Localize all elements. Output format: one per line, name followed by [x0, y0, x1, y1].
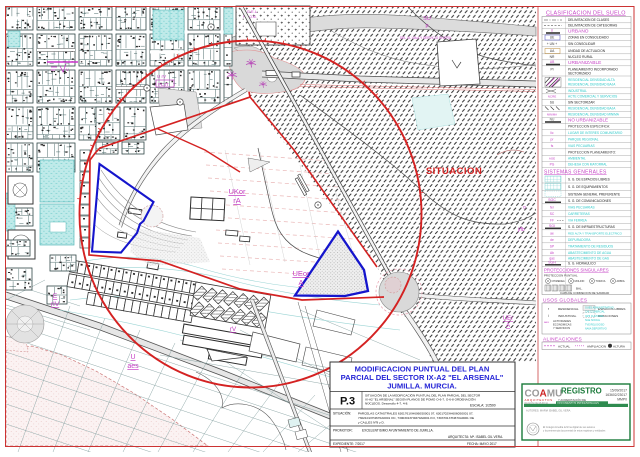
svg-text:INDUSTRIAL: INDUSTRIAL — [568, 89, 587, 93]
svg-text:EXPEDIENTE: 7/2017: EXPEDIENTE: 7/2017 — [333, 442, 365, 446]
svg-text:BAL.: BAL. — [576, 287, 583, 291]
svg-text:j/fb: j/fb — [517, 227, 525, 233]
svg-text:SU: SU — [550, 101, 555, 105]
svg-text:ZONAS EN CONSOLIDADO: ZONAS EN CONSOLIDADO — [568, 36, 609, 40]
svg-text:UKor: UKor — [228, 187, 246, 196]
svg-text:¤: ¤ — [523, 205, 526, 211]
svg-text:CAPA DE CORRECION DE SANIDAD: CAPA DE CORRECION DE SANIDAD — [560, 291, 609, 295]
svg-text:CARRETERAS: CARRETERAS — [568, 212, 590, 216]
svg-text:TVE RELIGIOSO: TVE RELIGIOSO — [585, 323, 604, 326]
svg-text:AMPLIACION: AMPLIACION — [587, 344, 606, 348]
svg-text:U: U — [130, 354, 135, 361]
svg-text:NÚCLEOS. Desarrollo 4-7, 4-8.: NÚCLEOS. Desarrollo 4-7, 4-8. — [365, 402, 408, 406]
svg-text:SISTEMAS GENERALES: SISTEMAS GENERALES — [544, 170, 607, 176]
svg-text:TORAYA: TORAYA — [596, 280, 606, 283]
svg-text:rIV: rIV — [51, 301, 60, 308]
svg-text:FF: FF — [550, 219, 554, 223]
svg-text:RED ALTA Y TRANSPORTE ELECTRIC: RED ALTA Y TRANSPORTE ELECTRICO — [568, 232, 623, 236]
svg-text:SECTORIZADO: SECTORIZADO — [568, 71, 591, 75]
svg-text:IGHI CULTURAL: IGHI CULTURAL — [585, 315, 604, 318]
svg-text:NO URBANIZABLE: NO URBANIZABLE — [568, 118, 608, 123]
svg-text:SIN CONSOLIDAR: SIN CONSOLIDAR — [568, 42, 596, 46]
svg-text:ARBOL: ARBOL — [617, 280, 626, 283]
svg-text:ARQUITECTA: Mª. ISABEL GIL: ARQUITECTA: Mª. ISABEL GIL VERA. — [448, 435, 503, 439]
svg-text:DEHESA CON MATORRAL: DEHESA CON MATORRAL — [568, 163, 607, 167]
svg-text:URBANO: URBANO — [568, 29, 589, 35]
svg-text:SIN SECTORIZAR: SIN SECTORIZAR — [568, 101, 595, 105]
svg-text:UEr: UEr — [503, 316, 513, 322]
svg-text:S. G. HIDRAULICO: S. G. HIDRAULICO — [568, 262, 596, 266]
svg-text:fs: fs — [551, 144, 554, 148]
svg-text:SITUACION: SITUACION — [426, 166, 482, 177]
svg-text:VIAS PECUARIAS: VIAS PECUARIAS — [568, 206, 595, 210]
svg-text:URBANIZABLE: URBANIZABLE — [568, 60, 601, 66]
svg-text:A: A — [298, 278, 303, 287]
svg-text:RESIDENCIAL DENSIDAD MINIMA: RESIDENCIAL DENSIDAD MINIMA — [568, 113, 620, 117]
svg-text:PROMOTOR:: PROMOTOR: — [333, 429, 353, 433]
svg-text:E: E — [53, 293, 58, 300]
svg-text:lic: lic — [550, 131, 553, 135]
svg-text:ACTUAL: ACTUAL — [558, 344, 570, 348]
svg-text:PARQUE REGIONAL: PARQUE REGIONAL — [568, 138, 599, 142]
svg-text:TRATAMIENTO DE RESIDUOS: TRATAMIENTO DE RESIDUOS — [568, 245, 613, 249]
svg-text:AUTORES: MARIA ISABEL GIL: AUTORES: MARIA ISABEL GIL VERA — [526, 409, 571, 413]
svg-text:ae: ae — [550, 232, 554, 236]
svg-text:PROTECCION ESPECIFICA:: PROTECCION ESPECIFICA: — [568, 125, 610, 129]
svg-text:UE: UE — [550, 36, 555, 40]
svg-text:CLASIFICACION DEL SUELO: CLASIFICACION DEL SUELO — [546, 11, 626, 17]
svg-text:ARQUITECTOS: ARQUITECTOS — [525, 398, 553, 402]
svg-text:MMP0: MMP0 — [617, 398, 627, 402]
svg-text:USOS GLOBALES: USOS GLOBALES — [543, 298, 587, 304]
svg-text:A: A — [506, 323, 510, 329]
svg-text:CHI COMERCIAL: CHI COMERCIAL — [585, 311, 605, 314]
svg-text:NAVA DEPORTIVO: NAVA DEPORTIVO — [585, 328, 607, 331]
svg-text:UA: UA — [550, 49, 555, 53]
svg-text:CHIMENEA: CHIMENEA — [552, 280, 566, 283]
svg-text:GUES ADMINISTRATIVO: GUES ADMINISTRATIVO — [585, 307, 614, 310]
svg-text:SITUACIÓN:: SITUACIÓN: — [333, 411, 351, 416]
svg-text:ECONOMICAS: ECONOMICAS — [553, 323, 572, 327]
svg-text:PROTECCIONES SINGULARES: PROTECCIONES SINGULARES — [544, 268, 609, 273]
svg-text:VIAS PECUARIAS: VIAS PECUARIAS — [568, 144, 595, 148]
svg-text:S. G. DE EQUIPAMIENTOS: S. G. DE EQUIPAMIENTOS — [568, 185, 608, 189]
svg-text:JUMILLA. MURCIA.: JUMILLA. MURCIA. — [387, 382, 457, 391]
svg-text:INDUSTRIAL: INDUSTRIAL — [558, 314, 577, 318]
svg-text:7302101XH4670A0001 OC, 730030: 7302101XH4670A0001 OC, 7300301XH4670A000… — [358, 416, 474, 420]
svg-text:P.3: P.3 — [340, 396, 355, 408]
svg-text:PI: PI — [550, 68, 553, 72]
svg-text:DELIMITACION DE CATEGORIAS: DELIMITACION DE CATEGORIAS — [568, 24, 617, 28]
svg-text:163602/23017: 163602/23017 — [605, 393, 627, 397]
svg-text:y la pertenencia documental de: y la pertenencia documental de estos reg… — [543, 430, 606, 433]
svg-text:DEL XL VIA A Y SERVICIO RIVERA: DEL XL VIA A Y SERVICIO RIVERA — [400, 36, 452, 40]
svg-text:ABASTECIMIENTO DE AGUA: ABASTECIMIENTO DE AGUA — [568, 251, 612, 255]
svg-text:rA: rA — [233, 196, 241, 205]
svg-text:RESIDENCIAL DENSIDAD BAJA: RESIDENCIAL DENSIDAD BAJA — [568, 83, 616, 87]
svg-text:NCRE: NCRE — [548, 95, 557, 99]
svg-text:RESIDENCIAL DENSIDAD ALTA: RESIDENCIAL DENSIDAD ALTA — [568, 78, 616, 82]
svg-text:de: de — [550, 238, 554, 242]
svg-text:UNIDAD DE ACTUACION: UNIDAD DE ACTUACION — [568, 49, 606, 53]
svg-text:PROTECCION PLANEAMIENTO:: PROTECCION PLANEAMIENTO: — [568, 151, 616, 155]
svg-text:ACTIVIDADES: ACTIVIDADES — [553, 319, 571, 323]
svg-text:VIA FERREA: VIA FERREA — [568, 219, 588, 223]
svg-text:NU: NU — [550, 118, 555, 122]
svg-text:SC: SC — [550, 212, 555, 216]
svg-text:15/09/2017: 15/09/2017 — [610, 389, 627, 393]
svg-text:REGISTRO: REGISTRO — [561, 387, 602, 396]
svg-text:NUCLEO RURAL: NUCLEO RURAL — [568, 55, 593, 59]
svg-text:SGH: SGH — [548, 261, 556, 265]
svg-text:Y SERVICIOS: Y SERVICIOS — [553, 326, 570, 330]
svg-text:Ab: Ab — [550, 251, 554, 255]
svg-text:ESCALA: 1/2500: ESCALA: 1/2500 — [470, 404, 496, 408]
svg-text:MOLINO: MOLINO — [575, 280, 585, 283]
svg-text:ALINEACIONES: ALINEACIONES — [543, 337, 582, 343]
svg-text:SGE SOCIAL: SGE SOCIAL — [585, 319, 601, 322]
svg-text:aes: aes — [127, 363, 139, 370]
svg-text:AGE: AGE — [549, 157, 555, 161]
svg-text:p: p — [425, 23, 428, 29]
svg-text:LUGAR DE INTERES COMUNITARIO: LUGAR DE INTERES COMUNITARIO — [568, 131, 623, 135]
svg-text:SGI: SGI — [549, 224, 555, 228]
svg-text:UB: UB — [550, 60, 555, 64]
svg-text:RESIDENCIAL: RESIDENCIAL — [558, 307, 579, 311]
svg-text:DEPURADORA: DEPURADORA — [568, 238, 591, 242]
svg-text:PG: PG — [550, 163, 555, 167]
svg-text:RESIDENCIAL DENSIDAD BAJA: RESIDENCIAL DENSIDAD BAJA — [568, 107, 616, 111]
svg-text:SGC: SGC — [548, 198, 556, 202]
svg-text:S. G. DE INFRAESTRUCTURAS: S. G. DE INFRAESTRUCTURAS — [568, 225, 615, 229]
svg-text:SU: SU — [423, 16, 431, 22]
svg-text:NR: NR — [550, 55, 555, 59]
svg-text:aes: aes — [544, 320, 549, 324]
svg-text:UEor: UEor — [292, 269, 310, 278]
svg-text:rV: rV — [230, 326, 237, 333]
svg-text:PL3T: PL3T — [158, 82, 169, 87]
svg-text:ACTE COMERCIAL Y SERVICIOS: ACTE COMERCIAL Y SERVICIOS — [568, 95, 617, 99]
svg-text:DELIMITACION DE CLASES: DELIMITACION DE CLASES — [568, 18, 609, 22]
svg-text:S. G. DE COMUNICACIONES: S. G. DE COMUNICACIONES — [568, 199, 611, 203]
svg-text:SISTEMA GENERAL PREFERENTE: SISTEMA GENERAL PREFERENTE — [568, 192, 620, 196]
svg-text:AMBIENTAL: AMBIENTAL — [568, 157, 586, 161]
svg-text:V: V — [66, 67, 69, 72]
svg-text:PROTECCION PUNTUAL: PROTECCION PUNTUAL — [544, 274, 578, 278]
svg-text:ALTURA: ALTURA — [613, 344, 626, 348]
svg-text:FECHA: MAYO 2017: FECHA: MAYO 2017 — [467, 442, 497, 446]
svg-text:+ UN +: + UN + — [547, 42, 558, 46]
svg-text:ABASTECIMIENTO DE GAS: ABASTECIMIENTO DE GAS — [568, 257, 609, 261]
svg-text:y CALLES Nº8 y D.: y CALLES Nº8 y D. — [358, 421, 385, 425]
svg-text:EXCELENTISIMO AYUNTAMIENTO D: EXCELENTISIMO AYUNTAMIENTO DE JUMILLA. — [362, 429, 434, 433]
svg-text:S. G. DE ESPACIOS LIBRES: S. G. DE ESPACIOS LIBRES — [568, 178, 610, 182]
svg-text:PARCELAS CATASTRALES 6301761: PARCELAS CATASTRALES 6301761XH6060S0001 … — [358, 412, 474, 416]
svg-text:MINIMA: MINIMA — [547, 113, 557, 117]
svg-text:U rV: U rV — [157, 74, 166, 79]
